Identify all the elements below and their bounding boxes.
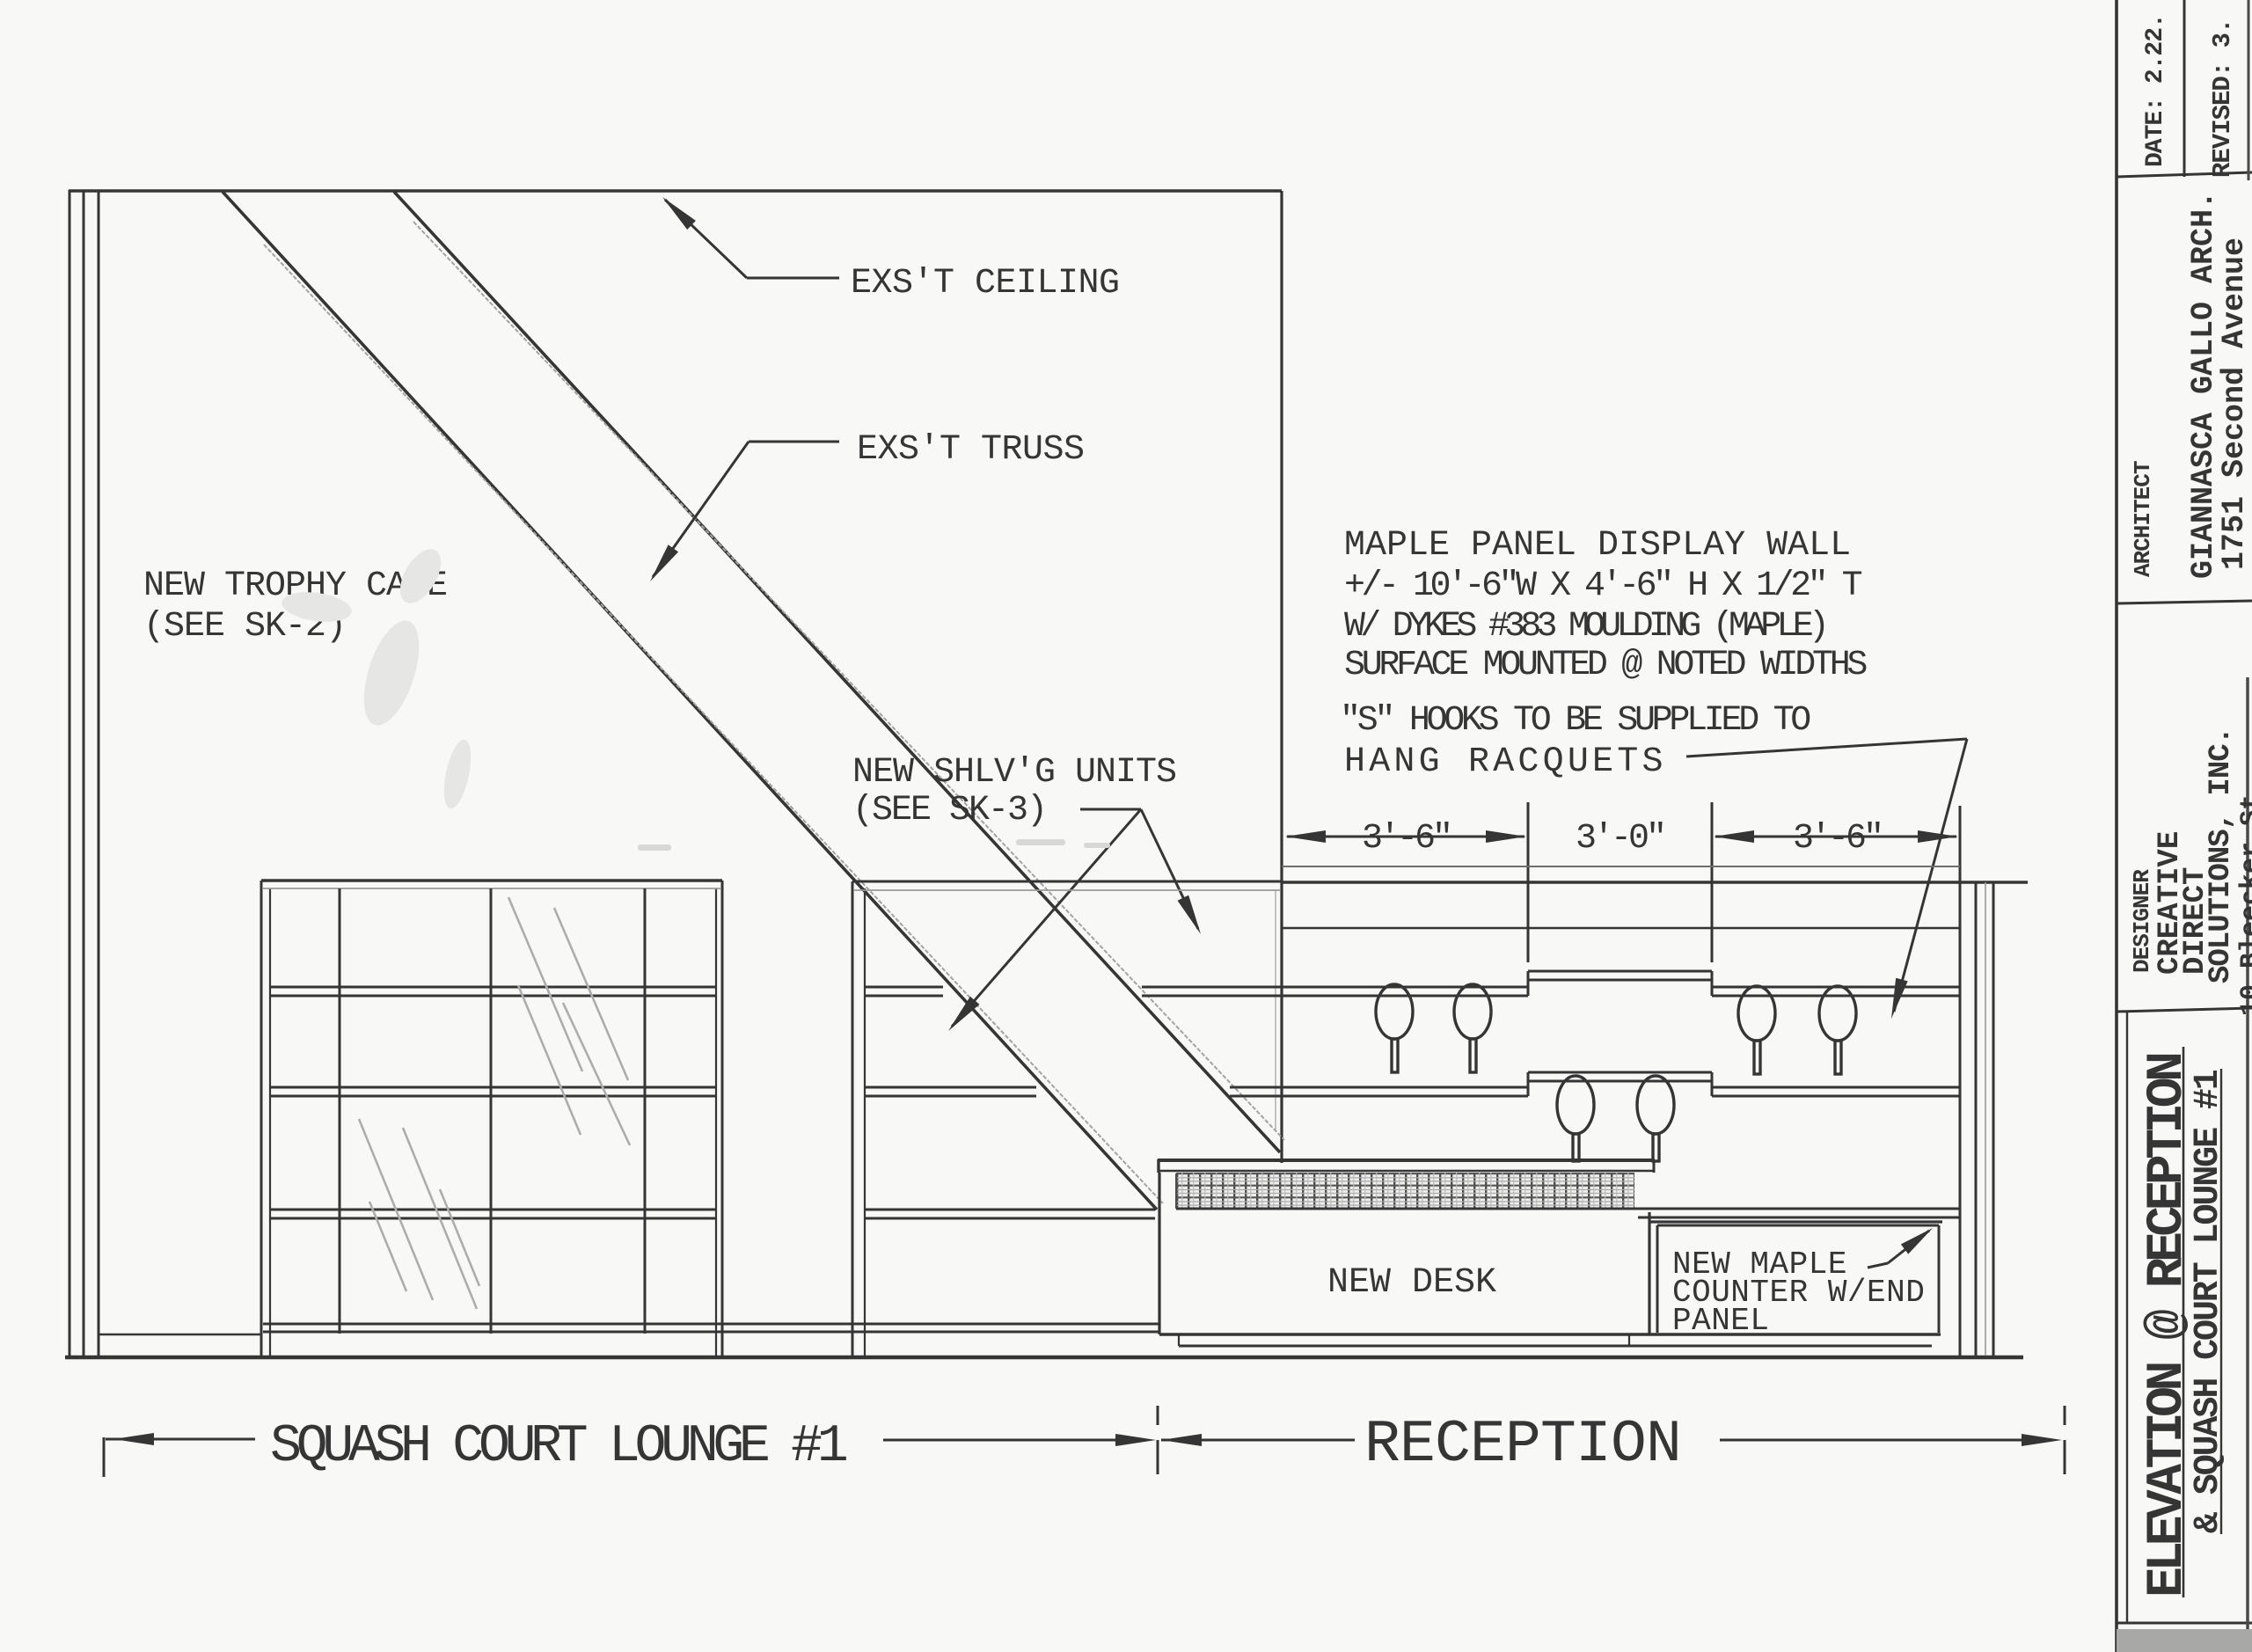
svg-text:"S" HOOKS TO BE SUPPLIED TO: "S" HOOKS TO BE SUPPLIED TO (1340, 701, 1810, 741)
svg-text:ARCHITECT: ARCHITECT (2130, 461, 2156, 577)
svg-text:SOLUTIONS, INC.: SOLUTIONS, INC. (2204, 727, 2238, 983)
svg-text:& SQUASH COURT LOUNGE #1: & SQUASH COURT LOUNGE #1 (2189, 1070, 2228, 1533)
svg-text:RECEPTION: RECEPTION (1364, 1411, 1681, 1479)
svg-text:SQUASH COURT LOUNGE #1: SQUASH COURT LOUNGE #1 (270, 1417, 847, 1477)
svg-text:DESIGNER: DESIGNER (2129, 869, 2155, 973)
svg-text:W/ DYKES #383 MOULDING (MAPLE): W/ DYKES #383 MOULDING (MAPLE) (1344, 607, 1824, 647)
svg-text:HANG RACQUETS: HANG RACQUETS (1344, 742, 1667, 782)
svg-text:(SEE SK-3): (SEE SK-3) (852, 791, 1046, 830)
svg-text:SURFACE MOUNTED @ NOTED WIDTHS: SURFACE MOUNTED @ NOTED WIDTHS (1344, 646, 1867, 685)
svg-text:EXS'T TRUSS: EXS'T TRUSS (857, 430, 1085, 470)
svg-text:REVISED: 3.: REVISED: 3. (2208, 19, 2237, 178)
svg-text:NEW DESK: NEW DESK (1327, 1263, 1496, 1303)
svg-text:3'-6": 3'-6" (1793, 819, 1881, 859)
svg-text:MAPLE PANEL DISPLAY WALL: MAPLE PANEL DISPLAY WALL (1344, 526, 1851, 566)
svg-text:10 Bleecker St.: 10 Bleecker St. (2236, 778, 2252, 1016)
svg-text:PANEL: PANEL (1672, 1303, 1770, 1339)
svg-text:GIANNASCA GALLO ARCH.: GIANNASCA GALLO ARCH. (2186, 191, 2221, 579)
svg-text:DATE: 2.22.: DATE: 2.22. (2142, 14, 2169, 167)
svg-text:+/- 10'-6"W X 4'-6" H X 1/2" T: +/- 10'-6"W X 4'-6" H X 1/2" T (1344, 567, 1862, 606)
svg-text:3'-6": 3'-6" (1362, 819, 1450, 859)
svg-text:NEW SHLV'G UNITS: NEW SHLV'G UNITS (852, 753, 1176, 793)
svg-text:3'-0": 3'-0" (1576, 819, 1663, 859)
svg-text:1751 Second Avenue: 1751 Second Avenue (2217, 238, 2252, 570)
svg-text:EXS'T CEILING: EXS'T CEILING (851, 264, 1120, 303)
